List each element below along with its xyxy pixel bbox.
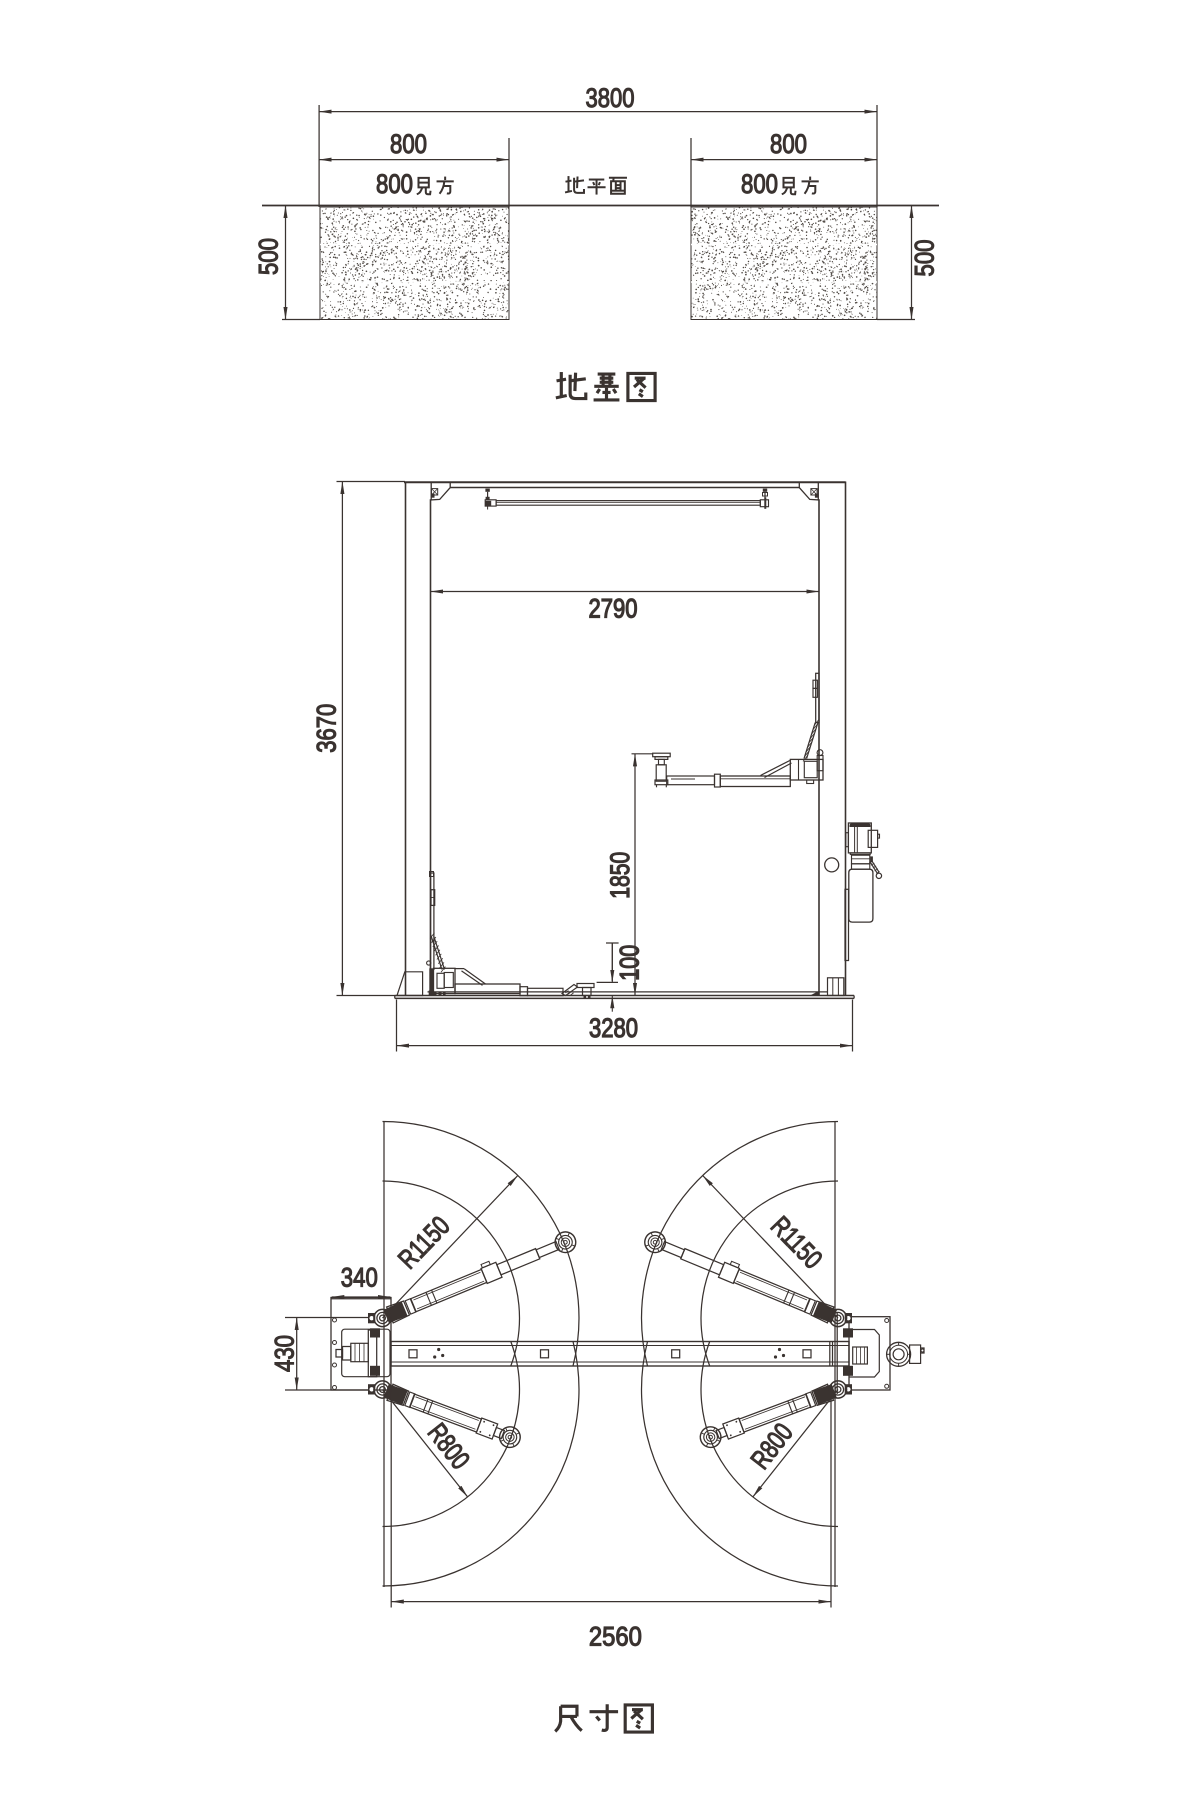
svg-text:500: 500 [909,240,939,277]
svg-text:2560: 2560 [589,1622,642,1652]
svg-text:800: 800 [770,129,807,159]
svg-text:3800: 3800 [586,83,635,113]
svg-text:800: 800 [390,129,427,159]
svg-text:3280: 3280 [589,1013,638,1043]
svg-text:100: 100 [614,945,644,981]
svg-text:500: 500 [253,238,283,275]
svg-text:800: 800 [741,169,778,199]
svg-text:2790: 2790 [589,593,638,623]
svg-text:430: 430 [269,1335,299,1372]
svg-text:1850: 1850 [605,852,635,899]
svg-text:800: 800 [376,169,413,199]
svg-text:3670: 3670 [311,704,341,753]
svg-text:340: 340 [341,1263,378,1293]
